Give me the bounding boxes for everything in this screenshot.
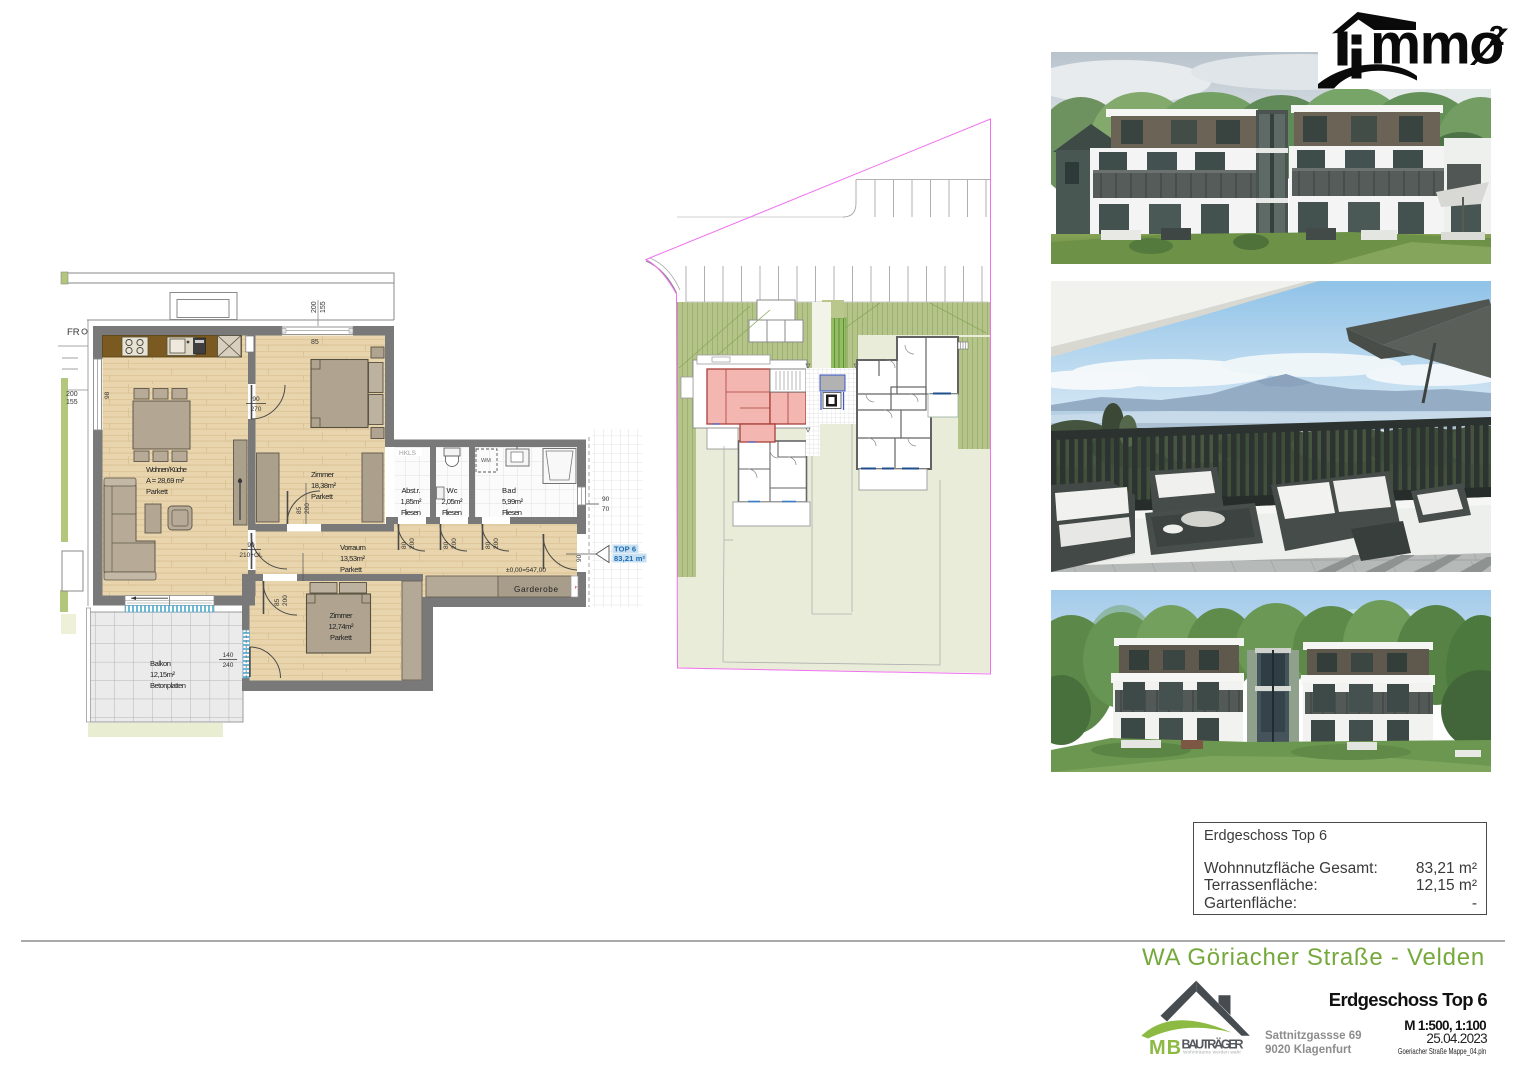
- svg-text:90: 90: [576, 554, 583, 562]
- svg-text:Wohnen/ Küche: Wohnen/ Küche: [146, 465, 187, 474]
- svg-text:TOP 6: TOP 6: [614, 545, 636, 554]
- svg-text:80: 80: [485, 541, 492, 549]
- svg-text:98: 98: [104, 391, 111, 399]
- svg-text:90: 90: [252, 396, 260, 403]
- svg-text:Bad: Bad: [502, 486, 516, 495]
- svg-text:200: 200: [304, 503, 311, 514]
- svg-text:MB: MB: [1149, 1037, 1182, 1059]
- svg-text:140: 140: [223, 652, 234, 659]
- svg-text:HKLS: HKLS: [399, 450, 417, 457]
- svg-text:240: 240: [223, 662, 234, 669]
- svg-text:13,53m²: 13,53m²: [340, 554, 365, 563]
- svg-text:FR: FR: [67, 327, 80, 338]
- svg-text:Fliesen: Fliesen: [442, 508, 462, 517]
- svg-text:70: 70: [602, 506, 610, 513]
- svg-text:2: 2: [1489, 20, 1505, 51]
- svg-text:2,05m²: 2,05m²: [442, 497, 463, 506]
- svg-text:±0,00=547,00: ±0,00=547,00: [506, 567, 546, 574]
- svg-text:200: 200: [311, 301, 318, 313]
- svg-text:Garderobe: Garderobe: [514, 585, 558, 594]
- svg-text:200: 200: [493, 538, 500, 549]
- svg-text:Wohnträume werden wahr: Wohnträume werden wahr: [1183, 1050, 1241, 1056]
- svg-text:12,15m²: 12,15m²: [150, 670, 175, 679]
- svg-text:200: 200: [451, 538, 458, 549]
- svg-text:Balkon: Balkon: [150, 659, 171, 668]
- svg-text:WM: WM: [481, 458, 491, 464]
- svg-text:Zimmer: Zimmer: [330, 611, 353, 620]
- svg-text:5,99m²: 5,99m²: [502, 497, 523, 506]
- svg-text:BAUTRÄGER: BAUTRÄGER: [1182, 1037, 1244, 1052]
- svg-text:90: 90: [602, 496, 610, 503]
- svg-text:1,85m²: 1,85m²: [401, 497, 422, 506]
- svg-text:85: 85: [311, 339, 319, 346]
- svg-text:Betonplatten: Betonplatten: [150, 681, 186, 690]
- svg-text:85: 85: [296, 506, 303, 514]
- svg-text:Parkett: Parkett: [330, 633, 353, 642]
- svg-text:200: 200: [66, 391, 78, 398]
- svg-text:80: 80: [443, 541, 450, 549]
- svg-text:155: 155: [66, 399, 78, 406]
- svg-text:200: 200: [409, 538, 416, 549]
- svg-text:18,38m²: 18,38m²: [311, 481, 336, 490]
- svg-text:Wc: Wc: [447, 486, 458, 495]
- svg-text:200: 200: [282, 595, 289, 606]
- svg-text:80: 80: [401, 541, 408, 549]
- svg-text:F: F: [575, 585, 578, 590]
- svg-text:Abst.r.: Abst.r.: [402, 486, 421, 495]
- svg-text:Fliesen: Fliesen: [502, 508, 522, 517]
- svg-text:Parkett: Parkett: [340, 565, 363, 574]
- svg-text:210+OL: 210+OL: [239, 552, 263, 559]
- svg-text:Zimmer: Zimmer: [311, 470, 334, 479]
- svg-text:Fliesen: Fliesen: [401, 508, 421, 517]
- svg-text:A = 28,69 m²: A = 28,69 m²: [146, 476, 184, 485]
- svg-text:Parkett: Parkett: [311, 492, 334, 501]
- svg-text:mmo: mmo: [1370, 13, 1503, 77]
- svg-text:12,74m²: 12,74m²: [329, 622, 354, 631]
- svg-text:Parkett: Parkett: [146, 487, 169, 496]
- svg-text:270: 270: [251, 406, 262, 413]
- svg-text:Vorraum: Vorraum: [340, 543, 366, 552]
- svg-text:155: 155: [320, 301, 327, 313]
- svg-text:90: 90: [247, 542, 255, 549]
- svg-text:85: 85: [274, 598, 281, 606]
